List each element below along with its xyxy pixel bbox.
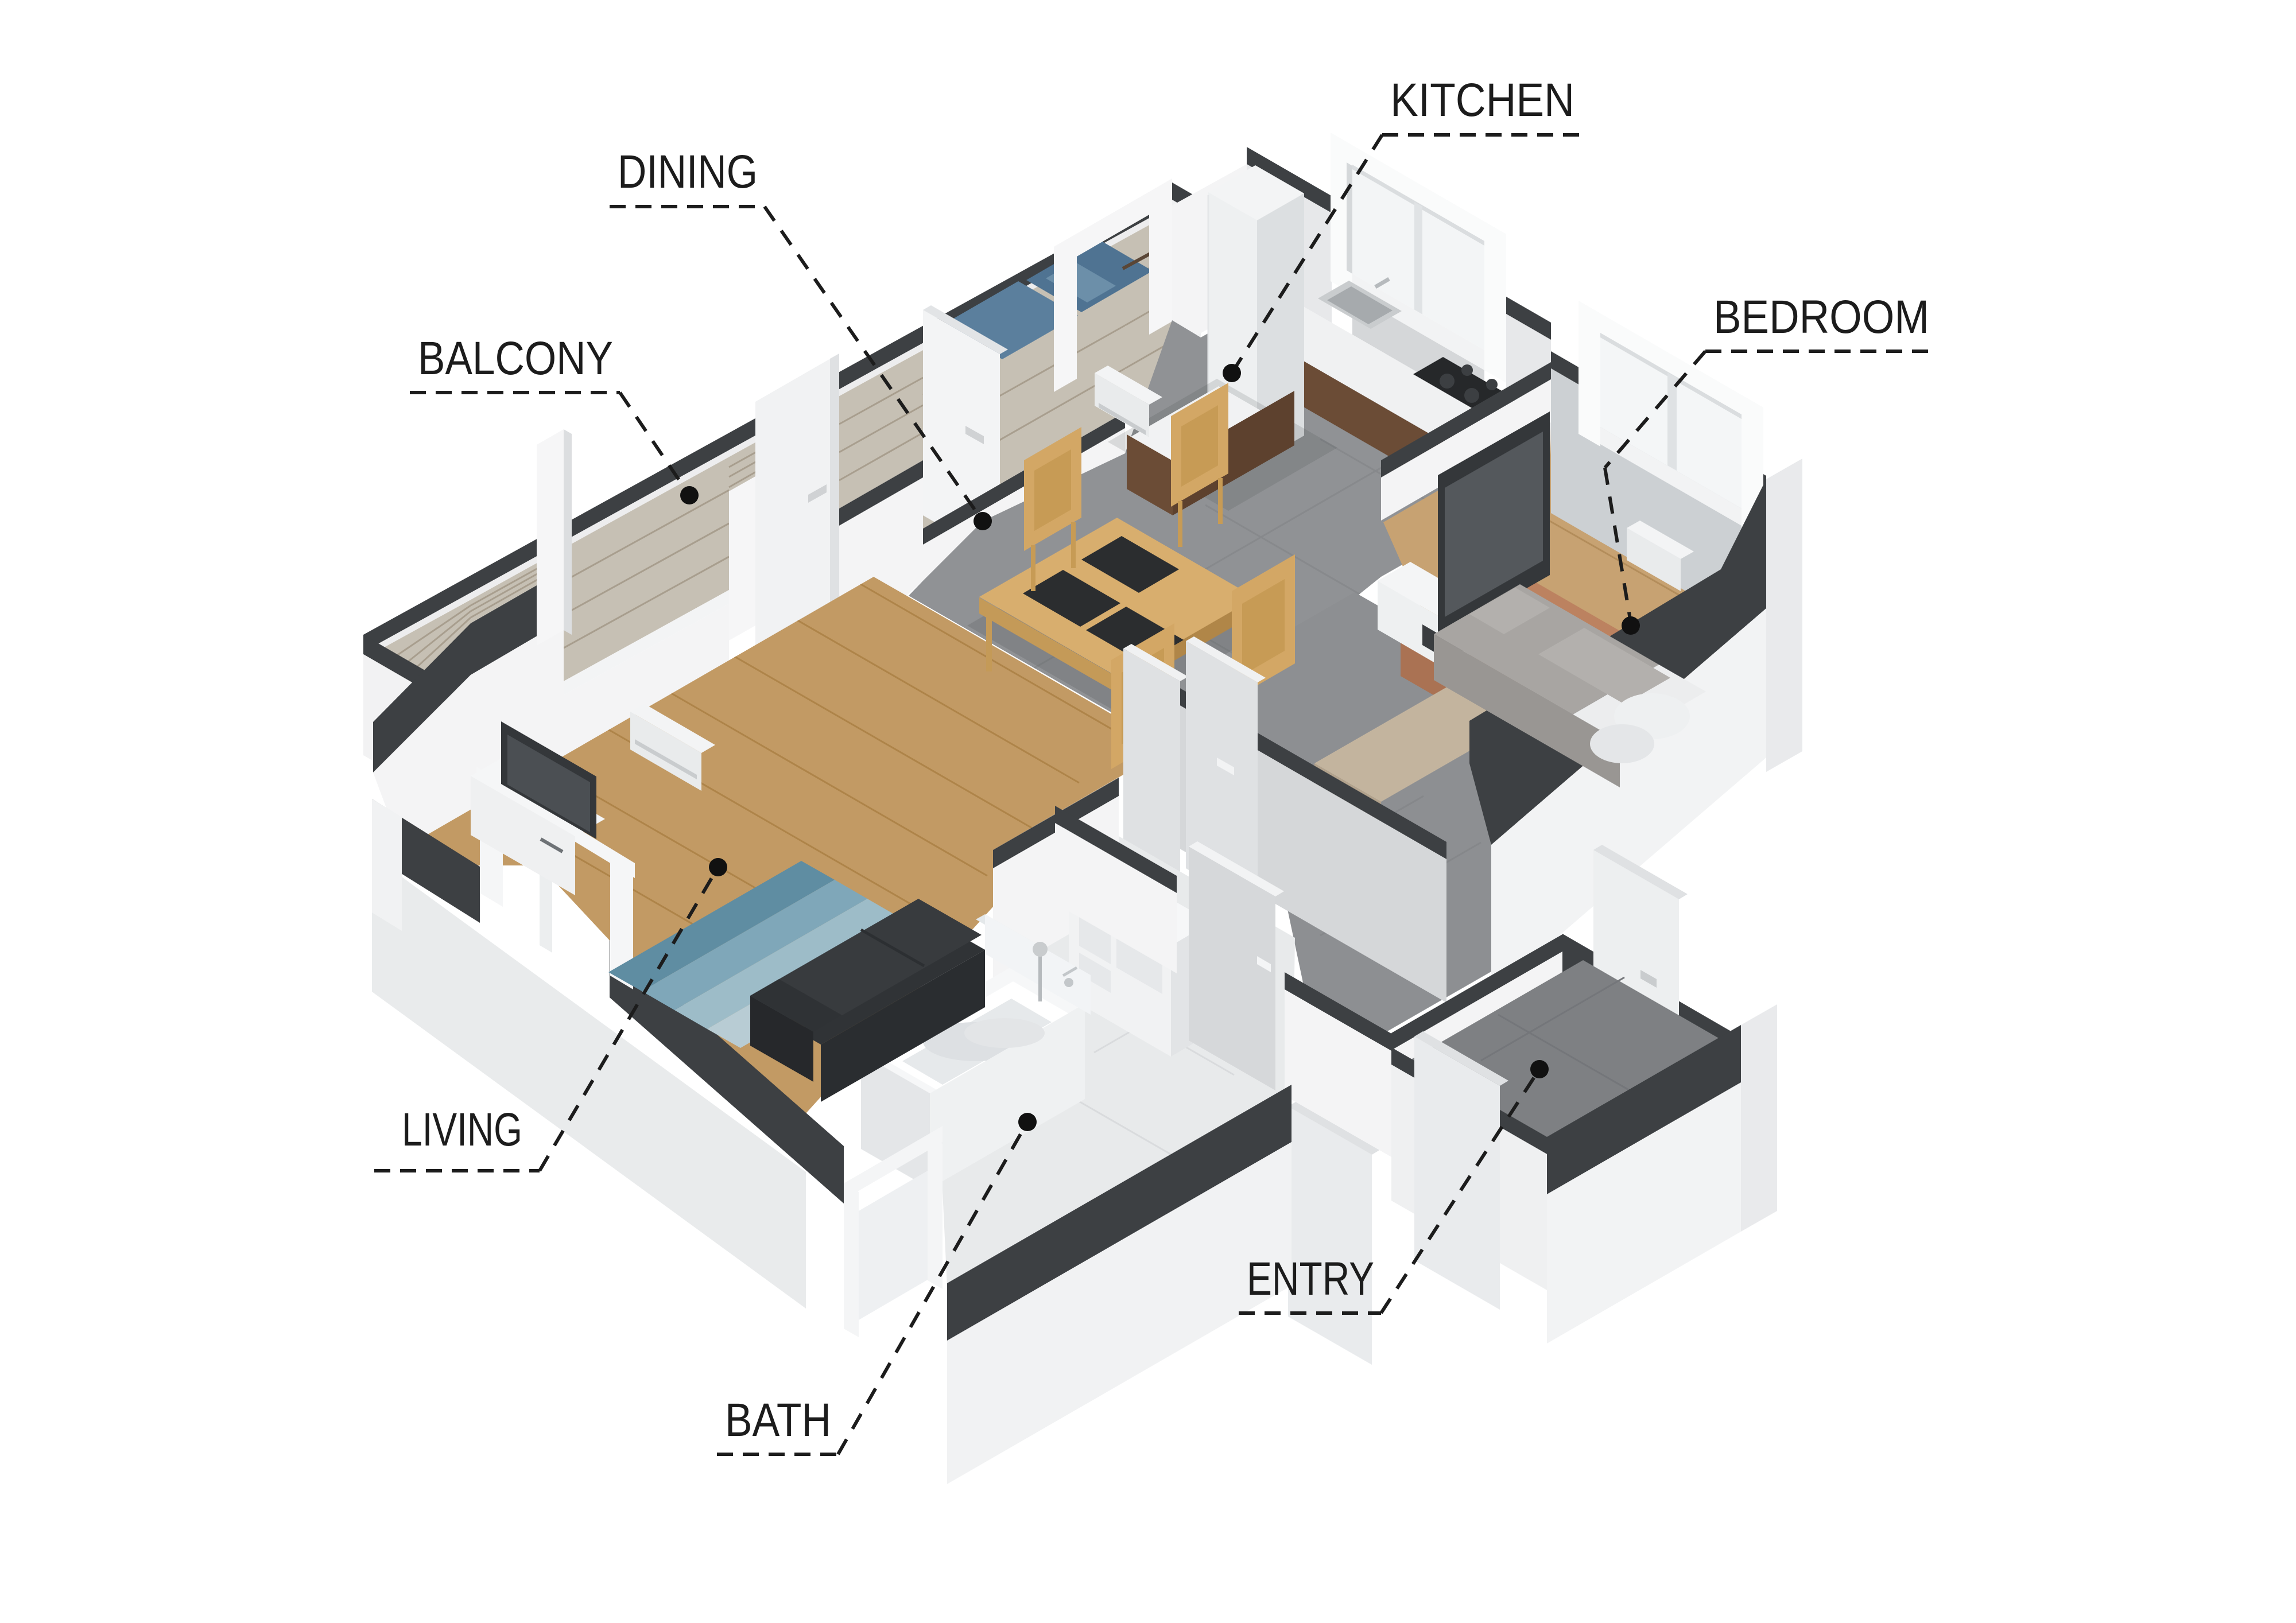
svg-text:BALCONY: BALCONY	[418, 332, 613, 385]
svg-text:BATH: BATH	[725, 1394, 831, 1446]
svg-text:DINING: DINING	[618, 146, 758, 198]
svg-text:LIVING: LIVING	[402, 1104, 522, 1156]
svg-text:KITCHEN: KITCHEN	[1390, 74, 1574, 126]
svg-text:ENTRY: ENTRY	[1247, 1253, 1374, 1305]
svg-text:BEDROOM: BEDROOM	[1713, 291, 1929, 343]
